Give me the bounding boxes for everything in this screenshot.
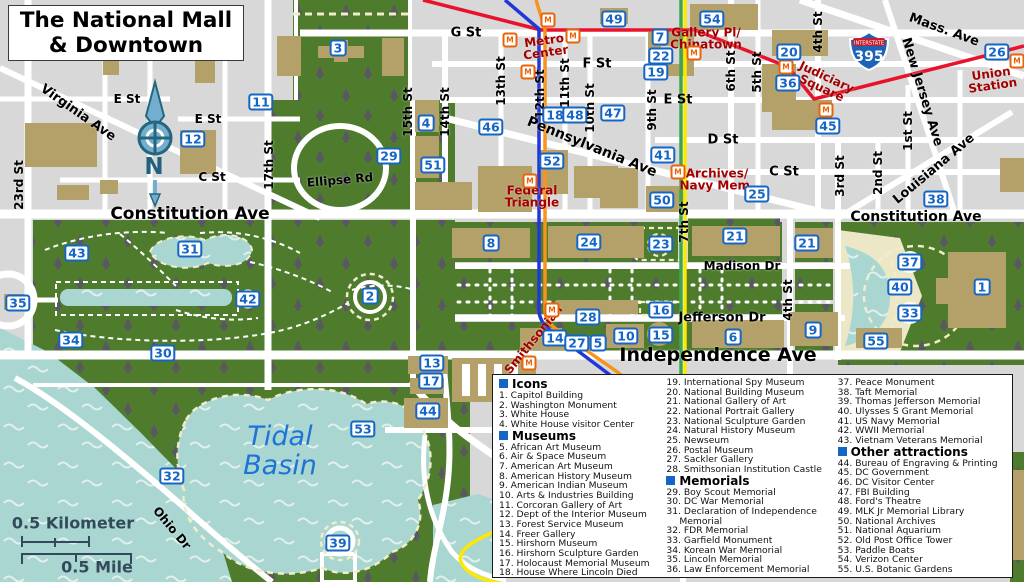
map-marker-9: 9 bbox=[805, 322, 822, 339]
legend-item: 18. House Where Lincoln Died bbox=[499, 568, 666, 575]
metro-icon: M bbox=[779, 60, 794, 75]
map-marker-15: 15 bbox=[648, 327, 673, 344]
reflecting-pool bbox=[60, 289, 232, 306]
tidal-basin bbox=[177, 389, 430, 573]
map-marker-12: 12 bbox=[180, 131, 205, 148]
street-label: Madison Dr bbox=[704, 259, 781, 273]
street-label: 23rd St bbox=[12, 160, 26, 210]
map-marker-48: 48 bbox=[562, 107, 587, 124]
map-title: The National Mall & Downtown bbox=[8, 5, 244, 61]
map-marker-16: 16 bbox=[648, 302, 673, 319]
street-label: 7th St bbox=[677, 201, 691, 242]
map-marker-31: 31 bbox=[177, 241, 202, 258]
interstate-word: INTERSTATE bbox=[854, 41, 884, 47]
map-marker-29: 29 bbox=[376, 148, 401, 165]
map-marker-44: 44 bbox=[415, 403, 440, 420]
map-marker-28: 28 bbox=[575, 309, 600, 326]
street-label: 9th St bbox=[645, 89, 659, 130]
street-label: Independence Ave bbox=[619, 344, 816, 366]
legend-column-1: Icons1. Capitol Building2. Washington Mo… bbox=[499, 378, 666, 575]
map-marker-54: 54 bbox=[699, 11, 724, 28]
legend-bullet-icon bbox=[666, 476, 675, 485]
legend-column-2: 19. International Spy Museum20. National… bbox=[666, 378, 837, 575]
map-marker-43: 43 bbox=[64, 245, 89, 262]
legend-bullet-icon bbox=[838, 447, 847, 456]
map-marker-11: 11 bbox=[248, 94, 273, 111]
street-label: Constitution Ave bbox=[850, 209, 981, 225]
metro-station-label-line: Navy Mem. bbox=[679, 180, 754, 192]
metro-station-label-line: Chinatown bbox=[670, 39, 742, 51]
map-marker-40: 40 bbox=[887, 279, 912, 296]
street-label: Constitution Ave bbox=[110, 204, 269, 224]
map-marker-42: 42 bbox=[235, 291, 260, 308]
national-mall-map: The National Mall & Downtown N INTERSTAT… bbox=[0, 0, 1024, 582]
street-label: E St bbox=[114, 92, 141, 106]
metro-station-label: FederalTriangle bbox=[505, 186, 559, 209]
map-marker-33: 33 bbox=[897, 305, 922, 322]
map-marker-55: 55 bbox=[863, 333, 888, 350]
map-marker-49: 49 bbox=[601, 11, 626, 28]
street-label: C St bbox=[198, 170, 225, 184]
street-label: C St bbox=[769, 165, 799, 180]
map-marker-53: 53 bbox=[350, 421, 375, 438]
tidal-basin-label-line: Tidal bbox=[243, 422, 317, 451]
metro-icon: M bbox=[819, 103, 834, 118]
metro-station-label: Archives/Navy Mem. bbox=[679, 169, 754, 192]
street-label: 15th St bbox=[401, 87, 415, 137]
metro-icon: M bbox=[566, 29, 581, 44]
legend-item: 36. Law Enforcement Memorial bbox=[666, 565, 837, 575]
street-label: Jefferson Dr bbox=[678, 311, 765, 326]
street-label: D St bbox=[708, 133, 739, 148]
street-label: 2nd St bbox=[871, 151, 885, 195]
metro-icon: M bbox=[1010, 54, 1024, 69]
street-label: 1st St bbox=[901, 111, 915, 151]
scale-km-label: 0.5 Kilometer bbox=[12, 514, 134, 533]
map-marker-26: 26 bbox=[984, 44, 1009, 61]
map-marker-30: 30 bbox=[150, 345, 175, 362]
metro-icon: M bbox=[503, 33, 518, 48]
map-marker-38: 38 bbox=[923, 191, 948, 208]
map-marker-37: 37 bbox=[897, 254, 922, 271]
legend-bullet-icon bbox=[499, 379, 508, 388]
street-label: 14th St bbox=[438, 87, 452, 137]
interstate-number: 395 bbox=[854, 49, 883, 65]
metro-icon: M bbox=[671, 165, 686, 180]
map-marker-32: 32 bbox=[159, 468, 184, 485]
map-marker-22: 22 bbox=[648, 48, 673, 65]
street-label: 13th St bbox=[494, 56, 508, 106]
map-marker-50: 50 bbox=[649, 192, 674, 209]
map-marker-21: 21 bbox=[722, 228, 747, 245]
map-marker-41: 41 bbox=[650, 147, 675, 164]
legend-item: 31. Declaration of Independence Memorial bbox=[666, 507, 837, 526]
map-marker-27: 27 bbox=[564, 335, 589, 352]
map-marker-35: 35 bbox=[5, 295, 30, 312]
map-marker-8: 8 bbox=[483, 235, 500, 252]
legend-box: Icons1. Capitol Building2. Washington Mo… bbox=[492, 374, 1013, 578]
map-marker-19: 19 bbox=[643, 64, 668, 81]
legend-section-header: Other attractions bbox=[838, 446, 1012, 459]
street-label: E St bbox=[195, 112, 222, 126]
map-title-line2: & Downtown bbox=[49, 33, 203, 58]
map-marker-46: 46 bbox=[478, 119, 503, 136]
map-marker-39: 39 bbox=[325, 535, 350, 552]
metro-icon: M bbox=[687, 46, 702, 61]
interstate-395-shield: INTERSTATE 395 bbox=[847, 30, 891, 72]
street-label: G St bbox=[451, 26, 482, 41]
legend-section-header: Memorials bbox=[666, 475, 837, 488]
legend-section-header: Museums bbox=[499, 430, 666, 443]
metro-station-label-line: Triangle bbox=[505, 197, 559, 209]
map-marker-47: 47 bbox=[600, 105, 625, 122]
metro-icon: M bbox=[521, 65, 536, 80]
street-label: E St bbox=[664, 93, 693, 108]
legend-item: 55. U.S. Botanic Gardens bbox=[838, 565, 1012, 575]
map-marker-23: 23 bbox=[648, 236, 673, 253]
street-label: 3rd St bbox=[833, 155, 847, 196]
map-marker-2: 2 bbox=[362, 288, 379, 305]
map-marker-20: 20 bbox=[776, 44, 801, 61]
street-label: 6th St bbox=[724, 50, 738, 91]
map-marker-45: 45 bbox=[815, 118, 840, 135]
legend-bullet-icon bbox=[499, 431, 508, 440]
tidal-basin-label-line: Basin bbox=[243, 451, 317, 480]
street-label: 5th St bbox=[750, 51, 764, 92]
map-marker-24: 24 bbox=[576, 234, 601, 251]
map-marker-36: 36 bbox=[775, 75, 800, 92]
map-marker-51: 51 bbox=[420, 157, 445, 174]
compass-north-label: N bbox=[144, 154, 163, 180]
map-marker-13: 13 bbox=[419, 355, 444, 372]
street-label: F St bbox=[583, 57, 612, 72]
street-label: 17th St bbox=[262, 140, 276, 190]
map-marker-7: 7 bbox=[652, 29, 669, 46]
street-label: 4th St bbox=[781, 279, 795, 320]
map-marker-10: 10 bbox=[613, 328, 638, 345]
metro-icon: M bbox=[545, 303, 560, 318]
map-marker-6: 6 bbox=[725, 329, 742, 346]
legend-column-3: 37. Peace Monument38. Taft Memorial39. T… bbox=[838, 378, 1012, 575]
scale-mile-label: 0.5 Mile bbox=[61, 558, 133, 577]
metro-station-label: Gallery Pl/Chinatown bbox=[670, 28, 742, 51]
metro-icon: M bbox=[522, 356, 537, 371]
map-marker-5: 5 bbox=[590, 335, 607, 352]
tidal-basin-label: TidalBasin bbox=[243, 422, 317, 480]
metro-icon: M bbox=[541, 13, 556, 28]
street-label: 11th St bbox=[558, 58, 572, 108]
metro-icon: M bbox=[523, 174, 538, 189]
street-label: 4th St bbox=[811, 11, 825, 52]
map-marker-1: 1 bbox=[974, 279, 991, 296]
map-marker-4: 4 bbox=[418, 115, 435, 132]
map-title-line1: The National Mall bbox=[20, 8, 232, 33]
map-marker-3: 3 bbox=[330, 40, 347, 57]
map-marker-21: 21 bbox=[794, 235, 819, 252]
map-marker-17: 17 bbox=[418, 373, 443, 390]
map-marker-34: 34 bbox=[58, 332, 83, 349]
map-marker-25: 25 bbox=[744, 186, 769, 203]
map-marker-52: 52 bbox=[539, 153, 564, 170]
